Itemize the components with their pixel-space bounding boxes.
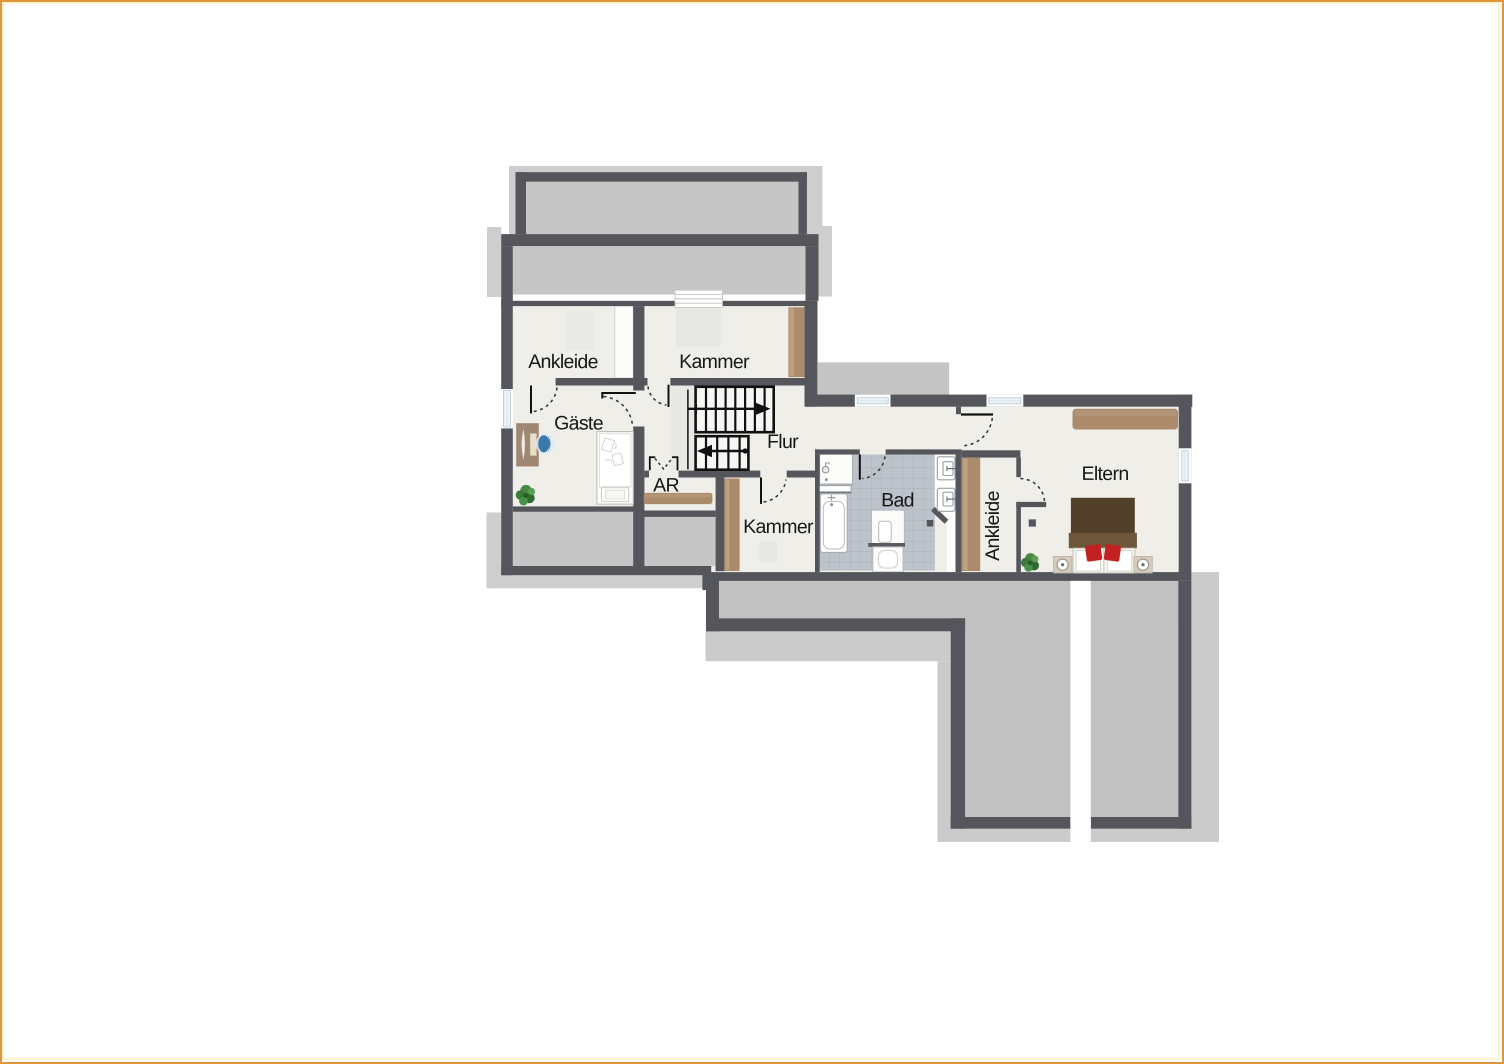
svg-text:Gäste: Gäste xyxy=(554,412,603,434)
svg-text:Eltern: Eltern xyxy=(1081,463,1128,485)
svg-text:Ankleide: Ankleide xyxy=(528,351,598,373)
svg-text:Kammer: Kammer xyxy=(679,351,750,373)
svg-text:Flur: Flur xyxy=(767,431,799,453)
svg-text:Ankleide: Ankleide xyxy=(982,491,1004,561)
svg-text:AR: AR xyxy=(653,474,679,496)
svg-text:Bad: Bad xyxy=(881,489,914,511)
svg-text:Kammer: Kammer xyxy=(743,516,814,538)
